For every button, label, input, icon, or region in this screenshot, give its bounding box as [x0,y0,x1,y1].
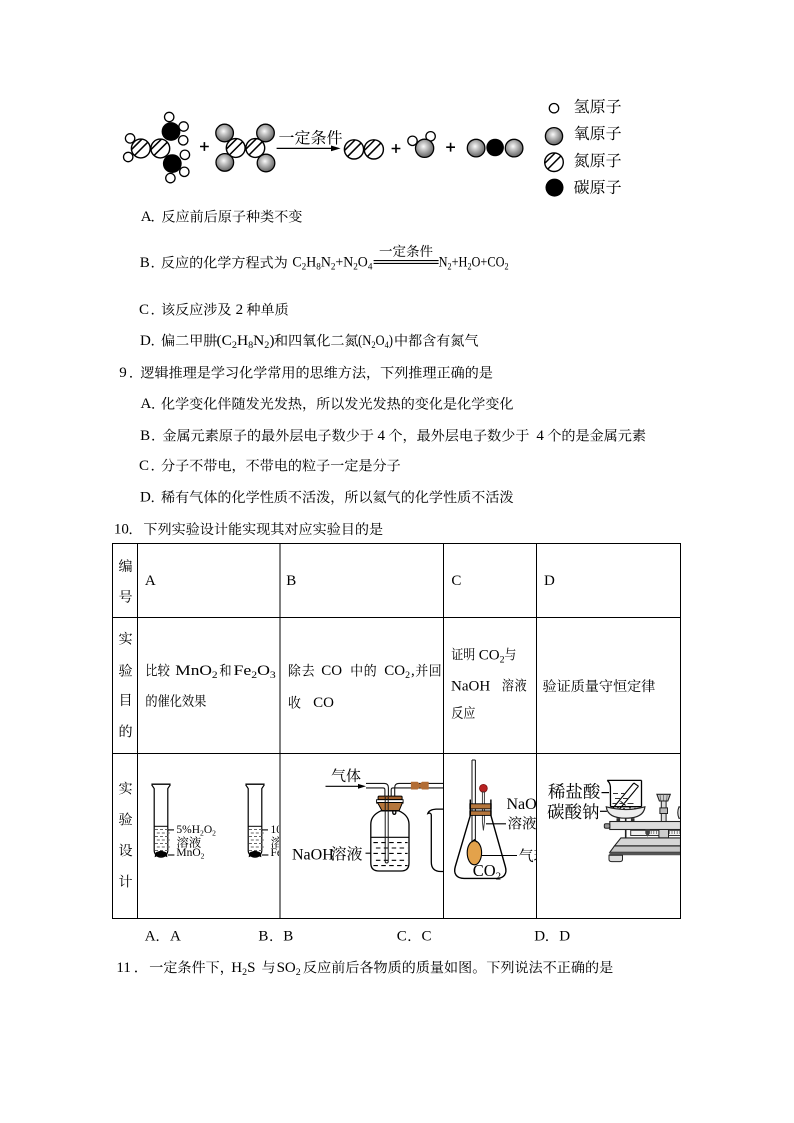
svg-text:(C2​H8​N2​): (C2​H8​N2​) [217,333,275,351]
svg-text:NaOH: NaOH [451,678,490,694]
svg-text:SO2​: SO2​ [277,960,301,978]
svg-text:Fe2​O3​: Fe2​O3​ [234,663,276,681]
svg-text:10: 10 [114,522,129,538]
svg-text:B: B [140,428,150,444]
svg-text:D: D [140,490,151,506]
svg-text:(N2​O4​): (N2​O4​) [358,333,393,351]
svg-text:C: C [397,929,407,945]
svg-text:CO: CO [321,663,342,679]
svg-text:,: , [411,663,415,679]
svg-text:B: B [258,929,268,945]
svg-text:5%H2​O2​: 5%H2​O2​ [176,824,216,837]
svg-text:MnO2​: MnO2​ [175,663,217,681]
svg-text:D: D [534,929,545,945]
svg-text:CO2​: CO2​ [479,647,505,665]
svg-text:2: 2 [236,302,244,318]
svg-text:A: A [141,209,152,225]
svg-text:C: C [139,458,149,474]
svg-text:C2​H8​N2​+N2​O4​: C2​H8​N2​+N2​O4​ [292,255,372,273]
svg-text:B: B [140,255,150,271]
svg-text:D: D [544,573,555,589]
svg-text:C: C [451,573,461,589]
svg-text:10%H2​O2​: 10%H2​O2​ [271,824,317,837]
svg-text:MnO2​: MnO2​ [176,847,204,860]
svg-text:CO2​: CO2​ [473,861,501,883]
svg-text:NaOH: NaOH [292,847,334,864]
svg-text:D: D [140,333,151,349]
svg-text:H2​S: H2​S [231,960,255,978]
svg-text:A: A [141,396,152,412]
svg-text:C: C [139,302,149,318]
svg-text:CO2​: CO2​ [384,663,410,681]
svg-text:NaOH: NaOH [507,796,549,813]
svg-text:A: A [145,573,156,589]
svg-text:4: 4 [378,428,386,444]
svg-text:B: B [286,573,296,589]
svg-text:B: B [283,929,293,945]
svg-text:N2​+H2​O+CO2​: N2​+H2​O+CO2​ [439,255,509,273]
svg-text:4: 4 [536,428,544,444]
svg-text:11: 11 [116,960,130,976]
svg-text:9: 9 [119,365,127,381]
svg-text:A: A [145,929,156,945]
svg-text:CO: CO [313,695,334,711]
svg-text:A: A [170,929,181,945]
svg-text:D: D [559,929,570,945]
svg-text:C: C [422,929,432,945]
